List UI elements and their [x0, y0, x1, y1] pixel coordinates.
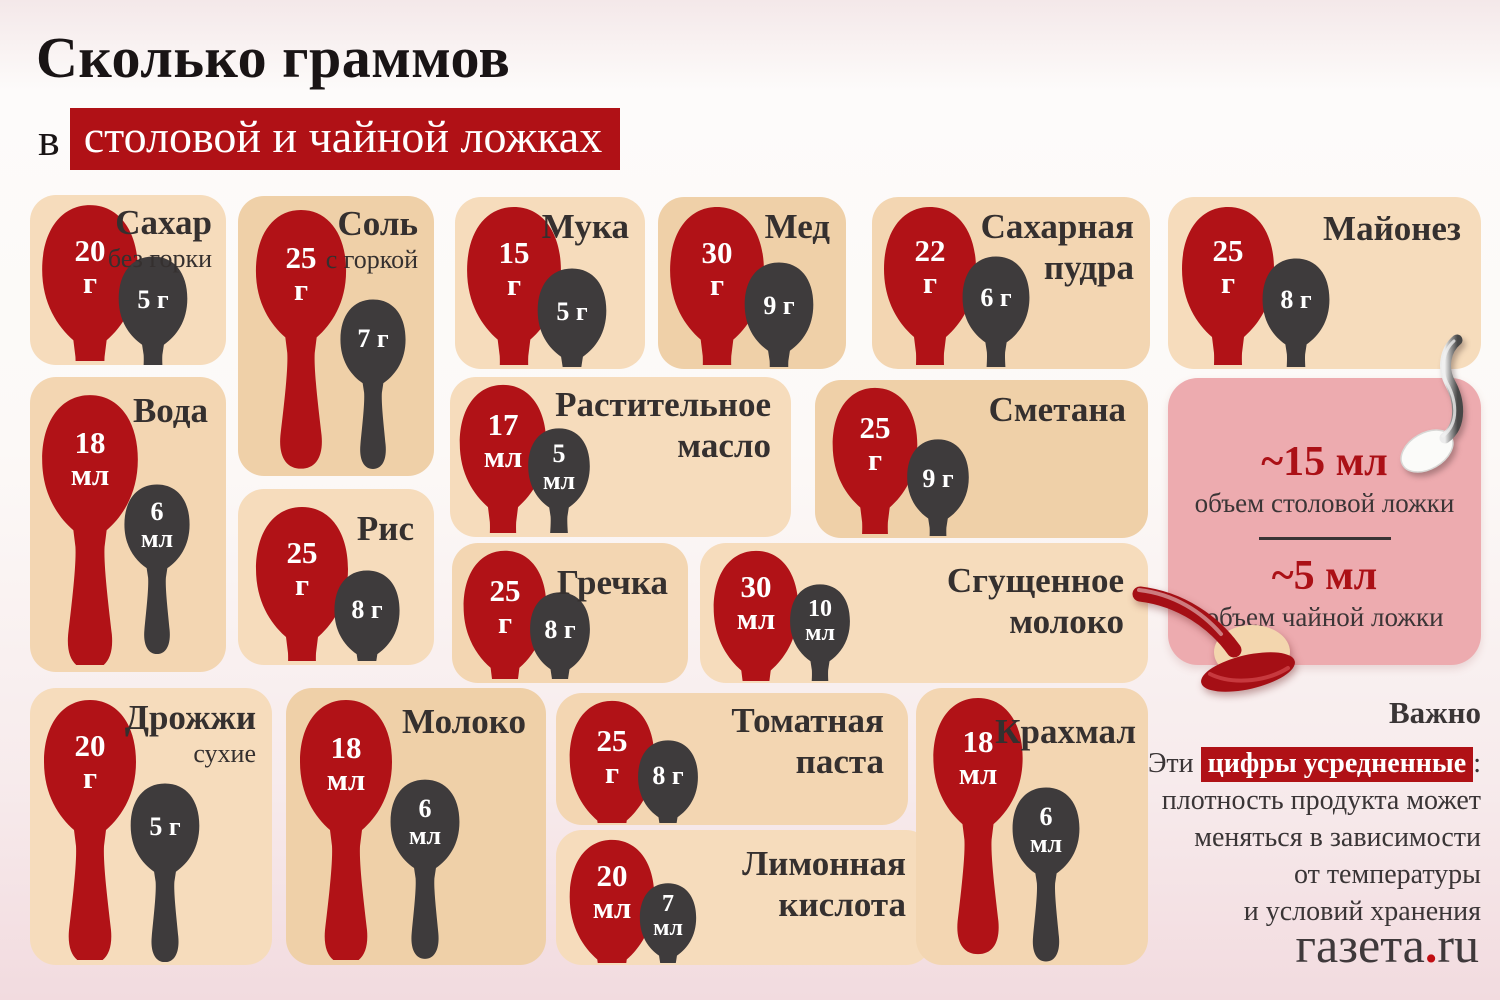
- teaspoon-icon: 8 г: [1258, 257, 1334, 367]
- product-name: Майонез: [1323, 209, 1461, 250]
- product-card-tomato-paste: 25г 8 г Томатная паста: [556, 693, 908, 825]
- divider: [1259, 537, 1391, 540]
- product-name: Дрожжи сухие: [125, 698, 256, 768]
- important-note: Важно Эти цифры усредненные: плотность п…: [1061, 695, 1481, 930]
- product-name: Мука: [542, 207, 629, 248]
- teaspoon-value: 10мл: [786, 597, 854, 646]
- important-note-title: Важно: [1061, 695, 1481, 731]
- logo-tld: ru: [1437, 917, 1479, 973]
- product-card-condensed-milk: 30мл 10мл Сгущенное молоко: [700, 543, 1148, 683]
- product-card-vegetable-oil: 17мл 5мл Растительное масло: [450, 377, 791, 537]
- tablespoon-value: 18мл: [38, 427, 142, 490]
- product-name: Томатная паста: [674, 701, 884, 782]
- product-card-rice: 25г 8 г Рис: [238, 489, 434, 665]
- product-card-buckwheat: 25г 8 г Гречка: [452, 543, 688, 683]
- product-card-salt: 25г 7 г Соль с горкой: [238, 196, 434, 476]
- product-note: сухие: [125, 739, 256, 768]
- teaspoon-icon: 9 г: [740, 261, 818, 367]
- tablespoon-icon: 18мл: [296, 698, 396, 960]
- tablespoon-volume-caption: объем столовой ложки: [1168, 488, 1481, 519]
- teaspoon-value: 6мл: [386, 796, 464, 849]
- important-note-line: Эти цифры усредненные:: [1061, 745, 1481, 782]
- metal-spoon-icon: [1396, 333, 1492, 488]
- product-card-honey: 30г 9 г Мед: [658, 197, 846, 369]
- teaspoon-value: 9 г: [740, 293, 818, 320]
- teaspoon-icon: 7 г: [336, 298, 410, 470]
- teaspoon-value: 8 г: [330, 597, 404, 624]
- product-card-powdered-sugar: 22г 6 г Сахарная пудра: [872, 197, 1150, 369]
- teaspoon-value: 5 г: [114, 287, 192, 314]
- tablespoon-value: 18мл: [296, 732, 396, 795]
- teaspoon-icon: 6мл: [386, 778, 464, 962]
- product-card-water: 18мл 6мл Вода: [30, 377, 226, 672]
- product-name: Мед: [765, 207, 830, 248]
- subtitle-highlight: столовой и чайной ложках: [70, 108, 620, 170]
- product-name: Сметана: [989, 390, 1126, 431]
- product-card-flour: 15г 5 г Мука: [455, 197, 645, 369]
- gazeta-logo: газета.ru: [1296, 916, 1479, 974]
- highlighted-text: цифры усредненные: [1201, 747, 1474, 782]
- subtitle-prefix: в: [38, 113, 60, 166]
- product-name: Сгущенное молоко: [894, 561, 1124, 642]
- red-spoon-icon: [1126, 580, 1316, 698]
- logo-dot: .: [1425, 917, 1438, 973]
- product-card-sour-cream: 25г 9 г Сметана: [815, 380, 1148, 538]
- important-note-line: меняться в зависимости: [1061, 819, 1481, 856]
- product-note: без горки: [108, 244, 212, 273]
- teaspoon-value: 6 г: [958, 285, 1034, 312]
- subtitle: в столовой и чайной ложках: [38, 108, 620, 170]
- teaspoon-icon: 10мл: [786, 583, 854, 681]
- product-card-milk: 18мл 6мл Молоко: [286, 688, 546, 965]
- teaspoon-icon: 6мл: [120, 483, 194, 657]
- teaspoon-value: 5 г: [126, 814, 204, 841]
- product-name: Молоко: [402, 702, 526, 743]
- product-name: Вода: [133, 391, 208, 432]
- teaspoon-icon: 9 г: [903, 438, 973, 536]
- teaspoon-value: 6мл: [120, 499, 194, 552]
- product-name: Гречка: [557, 563, 668, 604]
- teaspoon-value: 8 г: [1258, 287, 1334, 314]
- infographic-canvas: Сколько граммов в столовой и чайной ложк…: [0, 0, 1500, 1000]
- product-card-citric-acid: 20мл 7мл Лимонная кислота: [556, 830, 932, 965]
- product-name: Сахар без горки: [108, 203, 212, 273]
- product-card-yeast: 20г 5 г Дрожжи сухие: [30, 688, 272, 965]
- product-note: с горкой: [326, 245, 418, 274]
- teaspoon-icon: 8 г: [330, 569, 404, 661]
- teaspoon-icon: 5 г: [126, 782, 204, 962]
- teaspoon-value: 9 г: [903, 466, 973, 493]
- teaspoon-icon: 8 г: [526, 591, 594, 679]
- important-note-line: плотность продукта может: [1061, 782, 1481, 819]
- teaspoon-icon: 5 г: [533, 267, 611, 367]
- product-name: Рис: [357, 509, 414, 550]
- page-title: Сколько граммов: [36, 24, 510, 91]
- product-name: Соль с горкой: [326, 204, 418, 274]
- product-name: Сахарная пудра: [974, 207, 1134, 288]
- teaspoon-value: 8 г: [526, 617, 594, 644]
- product-name: Лимонная кислота: [666, 844, 906, 925]
- logo-name: газета: [1296, 917, 1425, 973]
- teaspoon-value: 7 г: [336, 326, 410, 353]
- teaspoon-value: 5 г: [533, 299, 611, 326]
- product-card-sugar: 20г 5 г Сахар без горки: [30, 195, 226, 365]
- product-name: Растительное масло: [521, 385, 771, 466]
- important-note-line: от температуры: [1061, 856, 1481, 893]
